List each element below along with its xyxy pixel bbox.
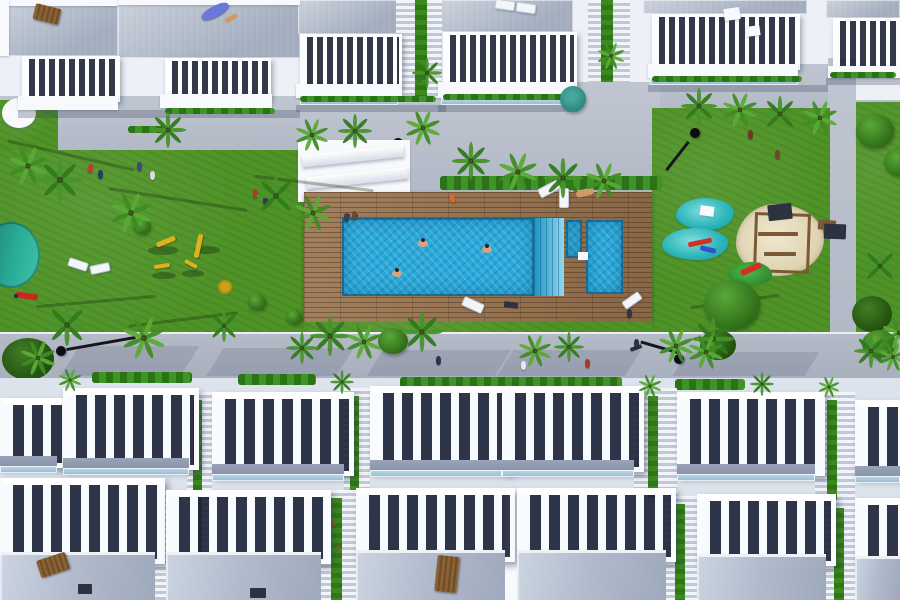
swimming-pool-main xyxy=(342,218,534,296)
terrace-table xyxy=(723,7,741,21)
front-garden-hedge xyxy=(675,379,745,390)
palm-tree xyxy=(402,312,442,352)
climbing-frame-bar xyxy=(764,252,796,256)
exercise-equipment-round xyxy=(218,280,232,294)
equipment-shadow xyxy=(148,246,178,255)
roof-terrace-railing xyxy=(652,14,800,70)
house-roof xyxy=(697,554,826,600)
terrace-floor xyxy=(63,458,189,468)
palm-tree xyxy=(405,110,441,146)
play-panel xyxy=(767,203,793,221)
terrace-table xyxy=(745,25,760,37)
palm-tree xyxy=(286,332,318,364)
bush xyxy=(286,310,302,324)
green-strip xyxy=(827,400,837,500)
palm-tree xyxy=(346,324,382,360)
building-roof xyxy=(298,0,398,34)
palm-tree xyxy=(256,176,296,216)
glass-balustrade xyxy=(63,468,189,475)
hedge xyxy=(300,96,436,102)
palm-tree xyxy=(543,158,583,198)
palm-tree xyxy=(688,334,724,370)
palm-tree xyxy=(330,370,354,394)
swimmer xyxy=(392,270,402,277)
flower-dot xyxy=(333,522,336,525)
hedge xyxy=(443,94,569,100)
terrace-floor xyxy=(370,460,502,470)
palm-tree xyxy=(862,248,898,284)
terrace-floor xyxy=(502,460,634,470)
patio-umbrella xyxy=(560,86,586,112)
aerial-3d-render-scene xyxy=(0,0,900,600)
pergola-roof xyxy=(824,224,847,240)
terrace-floor xyxy=(677,464,815,474)
palm-tree xyxy=(20,340,56,376)
palm-tree xyxy=(585,162,623,200)
person-lying xyxy=(14,294,18,298)
equipment-shadow xyxy=(152,272,176,279)
palm-tree xyxy=(638,374,662,398)
house-roof xyxy=(855,556,900,600)
street-lamp-head xyxy=(56,346,66,356)
palm-tree xyxy=(412,58,442,88)
terrace-floor xyxy=(0,456,57,466)
glass-balustrade xyxy=(370,470,502,477)
palm-tree xyxy=(150,112,186,148)
terrace-floor xyxy=(855,466,900,476)
pedestrian xyxy=(436,356,441,365)
swimmer xyxy=(482,246,492,253)
roof-terrace-railing xyxy=(443,32,577,88)
palm-tree xyxy=(554,332,584,362)
pedestrian xyxy=(98,170,103,179)
green-strip xyxy=(675,504,685,600)
palm-tree xyxy=(750,372,774,396)
palm-tree xyxy=(58,368,82,392)
tree xyxy=(856,114,894,148)
street-lamp-head xyxy=(690,128,700,138)
building-roof xyxy=(826,0,900,18)
palm-tree xyxy=(681,88,717,124)
roof-parapet xyxy=(0,0,118,6)
person-poolside xyxy=(627,309,632,318)
glass-balustrade xyxy=(502,470,634,477)
front-garden-hedge xyxy=(238,374,316,385)
green-strip xyxy=(331,498,342,600)
kids-pool xyxy=(586,220,623,294)
palm-tree xyxy=(295,118,329,152)
roof-terrace-railing xyxy=(833,18,900,72)
palm-tree xyxy=(518,334,552,368)
palm-tree xyxy=(338,114,372,148)
rooftop-unit xyxy=(78,584,92,594)
hedge xyxy=(652,76,802,82)
green-strip xyxy=(648,396,658,498)
wooden-crate xyxy=(434,555,460,593)
pedestrian xyxy=(150,171,155,180)
glass-balustrade xyxy=(855,476,900,483)
palm-tree xyxy=(38,158,82,202)
cyclist xyxy=(634,339,639,348)
palm-tree xyxy=(452,142,490,180)
palm-tree xyxy=(597,42,625,70)
palm-tree xyxy=(722,92,758,128)
glass-balustrade xyxy=(677,474,815,481)
equipment-shadow xyxy=(182,270,204,277)
pedestrian xyxy=(137,162,142,171)
house-roof xyxy=(517,550,666,600)
roof-parapet xyxy=(118,0,300,5)
bush xyxy=(248,294,266,310)
swimmer xyxy=(418,240,428,247)
person-poolside xyxy=(352,211,357,220)
rooftop-unit xyxy=(250,588,266,598)
house-roof xyxy=(166,552,321,600)
palm-tree xyxy=(878,342,900,372)
facade-fascia xyxy=(18,96,118,110)
pedestrian xyxy=(775,150,780,159)
palm-tree xyxy=(294,194,332,232)
pool-divider xyxy=(578,252,588,260)
person-poolside xyxy=(344,213,349,222)
glass-balustrade xyxy=(0,466,57,473)
hedge xyxy=(830,72,896,78)
palm-tree xyxy=(122,316,166,360)
flower-dot xyxy=(337,546,340,549)
palm-tree xyxy=(818,376,840,398)
facade-shadow xyxy=(648,85,828,92)
climbing-frame-bar xyxy=(758,232,798,236)
roof-parapet xyxy=(0,0,9,56)
facade-shadow xyxy=(826,78,900,85)
pedestrian xyxy=(748,130,753,139)
palm-tree xyxy=(802,100,838,136)
play-table xyxy=(699,205,714,217)
pedestrian xyxy=(585,359,590,368)
roof-terrace-railing xyxy=(300,34,402,90)
palm-tree xyxy=(762,96,798,132)
facade-shadow xyxy=(438,105,578,112)
palm-tree xyxy=(110,192,152,234)
glass-balustrade xyxy=(212,474,344,481)
palm-tree xyxy=(498,152,538,192)
house-roof xyxy=(356,550,505,600)
palm-tree xyxy=(208,310,240,342)
pool-steps xyxy=(534,218,564,296)
facade-fascia xyxy=(160,94,272,108)
terrace-floor xyxy=(212,464,344,474)
front-garden-hedge xyxy=(92,372,192,383)
